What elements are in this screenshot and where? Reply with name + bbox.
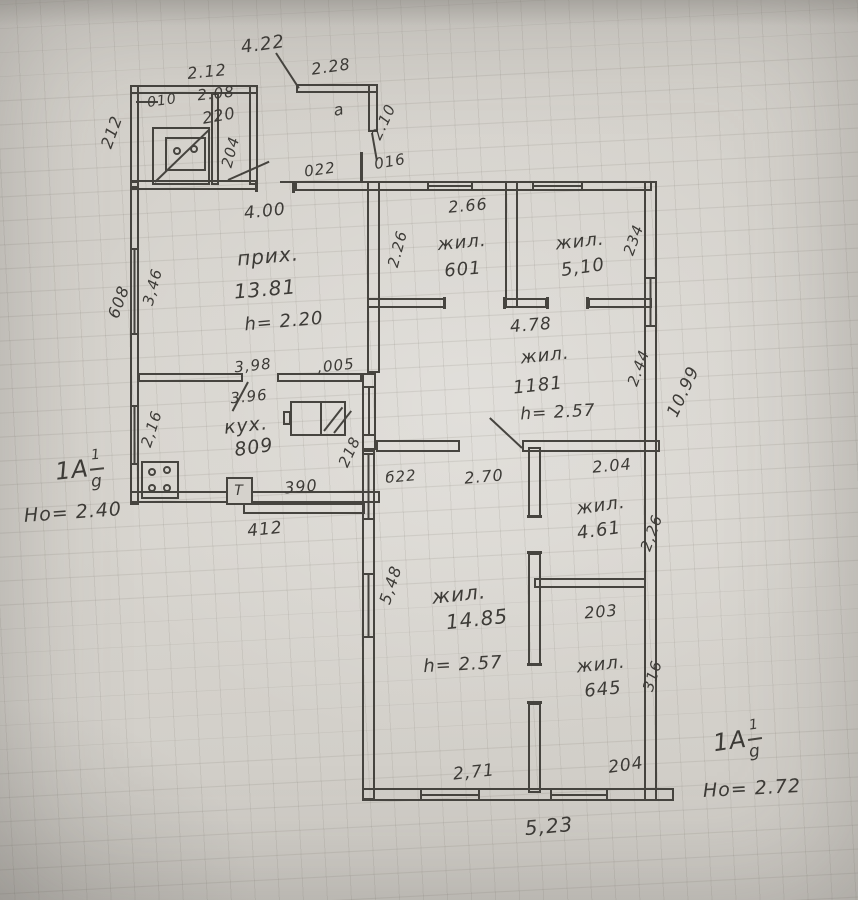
dim-2-04-bottom: 204 [607, 755, 644, 777]
room-645-area: 645 [583, 679, 622, 701]
room-prih-name: прих. [236, 243, 299, 268]
litera-left-sub: g [90, 473, 104, 491]
porch-letter: a [332, 101, 346, 119]
room-601-name: жил. [437, 232, 488, 254]
dim-3-46: 3,46 [141, 267, 165, 307]
kitchen-step-ledge [243, 503, 365, 514]
room-645-name: жил. [576, 653, 627, 676]
dim-2-12-left: 212 [99, 114, 126, 151]
dim-3-96: 3.96 [230, 388, 269, 407]
litera-right-sup: 1 [748, 717, 760, 732]
room461-top-wall [522, 440, 660, 452]
dim-2-28: 2.28 [310, 56, 351, 77]
dim-2-04-annex: 204 [220, 135, 243, 169]
litera-fraction-bar [90, 467, 104, 470]
gas-box-letter: Т [234, 484, 244, 498]
photographed-floor-plan: 4.222.122.080102202042122.28a2.100220164… [0, 0, 858, 900]
dim-0-10: 010 [146, 92, 177, 110]
door-jamb [527, 551, 542, 554]
dim-5-48: 5,48 [377, 564, 404, 607]
right-wall [644, 181, 657, 801]
dim-0-22-mid: б22 [385, 468, 418, 486]
door-jamb [292, 181, 295, 193]
litera-left-sup: 1 [90, 448, 101, 463]
annex-top-wall [130, 85, 258, 94]
prih-bottom-wall-a [138, 373, 243, 382]
room-510-area: 5,10 [560, 256, 606, 280]
door-jamb [503, 297, 506, 309]
room-461-area: 4.61 [576, 519, 622, 543]
dim-2-66: 2.66 [448, 196, 489, 215]
boiler-handle [283, 411, 291, 425]
door-jamb [443, 297, 446, 309]
partition-461-645 [534, 578, 646, 588]
house-top-wall [295, 181, 652, 191]
wall-1485-right-a [528, 447, 541, 518]
room1485-door-leaf [489, 417, 523, 448]
room-1485-height: h= 2.57 [423, 654, 503, 676]
room-prih-height: h= 2.20 [244, 310, 325, 335]
dim-3-90: 390 [284, 478, 319, 497]
boiler-icon [290, 401, 346, 436]
dim-4-78: 4.78 [509, 316, 552, 337]
rooms-bottom-wall-b [505, 298, 547, 308]
dim-10-99: 10.99 [665, 364, 703, 420]
door-jamb [527, 663, 542, 666]
dim-2-71: 2,71 [452, 762, 495, 783]
bottom-wall [362, 788, 674, 801]
room-461-name: жил. [575, 494, 626, 519]
room1181-bottom-wall [376, 440, 460, 452]
window-room601 [427, 181, 473, 191]
dim-0-05: ,005 [317, 357, 356, 376]
door-jamb [255, 180, 258, 192]
room-1181-name: жил. [520, 344, 571, 367]
boiler-divider [320, 401, 322, 436]
porch-top-wall [296, 84, 378, 93]
door-jamb [586, 297, 589, 309]
litera-right-base: 1А [712, 727, 749, 755]
window-kitchen-left [130, 405, 139, 465]
dim-3-98: 3,98 [234, 357, 273, 376]
room-1485-name: жил. [431, 581, 487, 607]
window-1485-left-2 [362, 573, 375, 638]
dim-2-20-annex: 220 [201, 105, 237, 127]
dim-4-12: 412 [246, 520, 283, 541]
door-jamb [546, 297, 549, 309]
dim-0-16: 016 [373, 152, 407, 172]
stove-ring-icon [173, 147, 181, 155]
burner-icon [163, 484, 171, 492]
room-prih-area: 13.81 [233, 276, 297, 301]
dim-4-22: 4.22 [240, 33, 286, 57]
dim-6-08: 608 [106, 284, 133, 321]
dim-2-12-top: 2.12 [186, 62, 227, 82]
cooker-icon [141, 461, 179, 499]
wall-1485-right-c [528, 703, 541, 793]
dim-2-18: 218 [337, 434, 364, 469]
room-510-name: жил. [555, 230, 606, 253]
dim-5-23: 5,23 [524, 814, 574, 838]
dim-4-00: 4.00 [243, 201, 286, 222]
rooms-bottom-wall-a [367, 298, 445, 308]
burner-icon [148, 484, 156, 492]
wall-1485-right-b [528, 553, 541, 665]
window-1485-bottom [420, 788, 480, 801]
door-jamb [527, 701, 542, 704]
window-room510 [532, 181, 583, 191]
room-kuh-area: 809 [233, 436, 275, 460]
burner-icon [163, 466, 171, 474]
room-1485-area: 14.85 [445, 606, 509, 632]
dim-2-34: 234 [622, 223, 647, 258]
litera-right-sub: g [748, 743, 762, 761]
litera-right-height: Но= 2.72 [702, 777, 801, 801]
room-1181-height: h= 2.57 [520, 403, 596, 424]
prih-right-wall [367, 181, 380, 373]
leader-4-22 [275, 52, 300, 88]
dim-2-16: 2,16 [139, 409, 165, 449]
dim-tick [360, 152, 363, 182]
window-645-bottom [550, 788, 608, 801]
wall-601-510 [505, 181, 518, 308]
room-601-area: 601 [444, 259, 483, 280]
dim-2-70: 2.70 [464, 467, 505, 486]
burner-icon [148, 468, 156, 476]
rooms-bottom-wall-c [588, 298, 652, 308]
dim-2-03: 203 [584, 603, 619, 622]
dim-0-22-porch: 022 [303, 160, 336, 179]
window-1485-left-1 [362, 453, 375, 520]
floor-plan: 4.222.122.080102202042122.28a2.100220164… [0, 0, 858, 900]
door-jamb [527, 515, 542, 518]
dim-2-26-601: 2.26 [386, 229, 410, 269]
corridor-wall-opening [362, 386, 376, 436]
litera-left-base: 1А [54, 456, 90, 483]
litera-left-height: Но= 2.40 [23, 500, 122, 526]
house-top-wall-left [130, 180, 257, 190]
dim-2-08: 2.08 [197, 85, 236, 104]
room-1181-area: 1181 [512, 374, 563, 397]
dim-2-04-461: 2.04 [592, 456, 633, 475]
dim-2-26-461: 2,26 [639, 513, 666, 553]
